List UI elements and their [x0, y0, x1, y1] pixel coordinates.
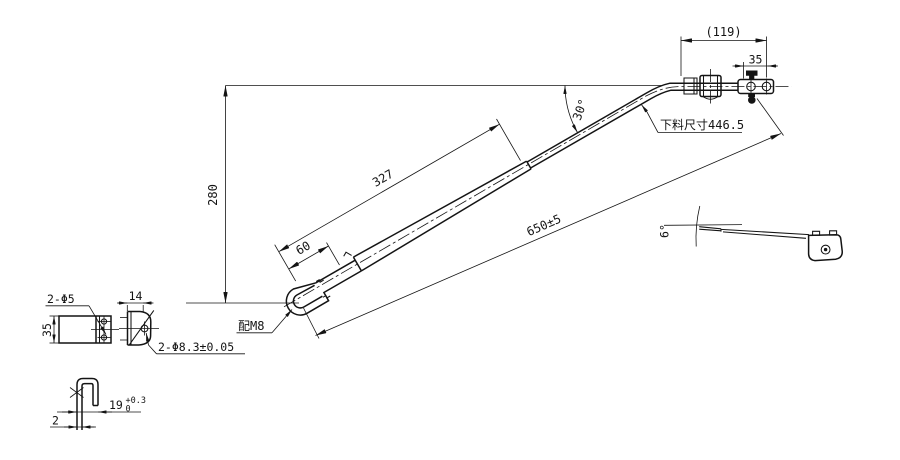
dim-2-label: 2 [52, 414, 59, 428]
angle-30-label: 30° [570, 97, 591, 122]
hook-crimp-step-lower [323, 296, 330, 298]
side-view-centerline [664, 225, 742, 226]
detail-bracket-side: 35 2-Φ5 [40, 292, 119, 343]
dimension-2: 2 [50, 414, 96, 428]
dim-35h-label: 35 [749, 53, 763, 67]
note-2d5-leader [89, 306, 106, 335]
note-2d83-label: 2-Φ8.3±0.05 [158, 340, 234, 354]
dim-60-ext [327, 243, 340, 266]
note-2-d5: 2-Φ5 [46, 292, 107, 335]
arm-latch-tab [344, 252, 352, 256]
dimension-650: 650±5 [304, 99, 784, 339]
side-arm-tip-lower [699, 229, 721, 231]
note-2-d83: 2-Φ8.3±0.05 [146, 333, 245, 354]
dim-327-line [279, 124, 500, 252]
side-arm-lower-edge [723, 232, 806, 238]
side-head-hole-center [824, 248, 827, 251]
side-head-block [809, 235, 843, 261]
angle-6-label: 6° [658, 224, 672, 238]
hook-section-outer [77, 379, 98, 431]
note-blank-label: 下料尺寸446.5 [660, 118, 744, 132]
dim-119-label: (119) [705, 25, 741, 39]
dimension-14: 14 [117, 289, 154, 313]
drawing-sheet: 280 327 60 650±5 30° [0, 0, 900, 460]
note-2d83-leader [146, 333, 156, 354]
head-bolt-top [746, 71, 758, 81]
dim-327-ext-hook [275, 245, 296, 281]
side-arm-upper-edge [721, 229, 809, 234]
dim-280-label: 280 [206, 184, 220, 206]
dim-327-ext-end [497, 119, 521, 161]
note-fit-m8: 配M8 [237, 310, 293, 334]
head-bolt-bottom-head [748, 96, 756, 104]
dimension-60: 60 [289, 238, 340, 269]
main-view: 280 327 60 650±5 30° [186, 25, 792, 339]
dim-19-label: 19 [109, 398, 123, 412]
note-blank-size: 下料尺寸446.5 [642, 105, 745, 133]
dimension-119: (119) [681, 25, 767, 78]
hook-section-inner [82, 384, 93, 430]
note-blank-leader [642, 105, 659, 133]
dim-650-ext-hook [304, 308, 320, 339]
dim-35b-label: 35 [40, 323, 54, 337]
dim-14-label: 14 [129, 289, 143, 303]
side-arm-tip-upper [699, 227, 721, 229]
note-m8-label: 配M8 [238, 319, 264, 333]
dim-19-tol-lower: 0 [126, 405, 131, 415]
angle-6-arc [696, 206, 700, 247]
dimension-327: 327 [275, 119, 521, 281]
dimension-angle-30: 30° [565, 86, 591, 133]
side-view: 6° [658, 206, 843, 261]
dim-650-ext-head [757, 99, 784, 136]
hook-inner-outline [293, 285, 322, 308]
dimension-35-bracket: 35 [40, 316, 59, 343]
arm-lower-edge [361, 169, 531, 271]
note-m8-leader [272, 310, 292, 333]
technical-drawing: 280 327 60 650±5 30° [0, 0, 900, 460]
dimension-19: 19 +0.3 0 [57, 396, 146, 415]
dim-650-label: 650±5 [525, 212, 564, 239]
detail-hook-section: 19 +0.3 0 2 [50, 379, 146, 431]
note-2d5-label: 2-Φ5 [47, 292, 75, 306]
dim-650-line [316, 134, 782, 336]
arm-cap-hook-side [353, 257, 361, 271]
head-ferrule [684, 78, 697, 94]
dimension-280: 280 [186, 86, 299, 304]
